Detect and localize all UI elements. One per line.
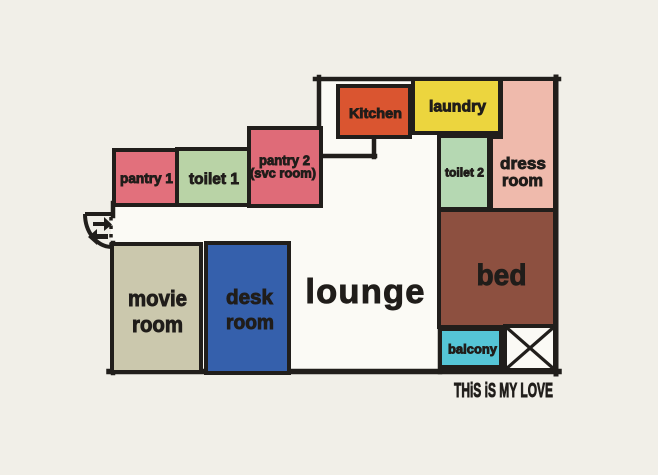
- svg-text:(svc room): (svc room): [250, 166, 316, 181]
- svg-text:Kitchen: Kitchen: [349, 105, 402, 121]
- svg-text:THiS iS MY LOVE: THiS iS MY LOVE: [454, 380, 553, 402]
- svg-text:desk: desk: [226, 286, 274, 309]
- svg-text:room: room: [226, 312, 274, 334]
- svg-text:movie: movie: [128, 286, 187, 311]
- svg-text:bed: bed: [477, 259, 527, 292]
- svg-text:toilet 2: toilet 2: [445, 166, 484, 180]
- svg-text:balcony: balcony: [448, 342, 498, 357]
- svg-text:room: room: [502, 171, 543, 190]
- svg-text:toilet 1: toilet 1: [189, 171, 239, 188]
- svg-text:room: room: [132, 312, 183, 337]
- svg-text:lounge: lounge: [305, 273, 425, 311]
- svg-text:pantry 1: pantry 1: [120, 170, 173, 186]
- svg-text:laundry: laundry: [429, 99, 486, 116]
